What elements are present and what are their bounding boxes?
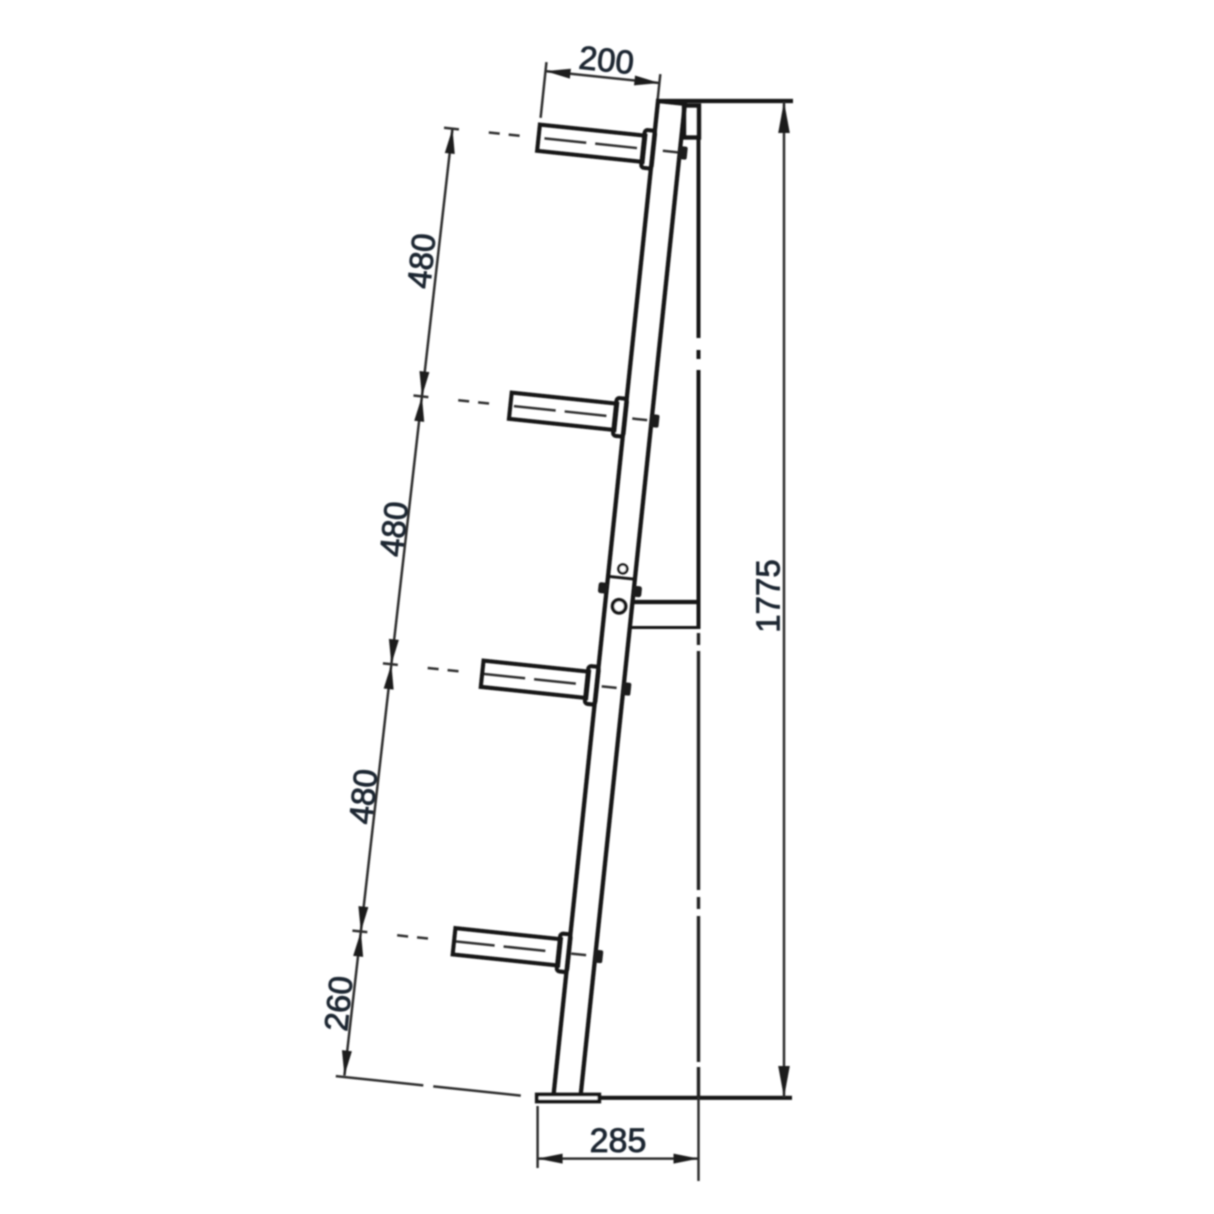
svg-text:1775: 1775 <box>750 559 787 632</box>
svg-text:200: 200 <box>577 39 636 82</box>
svg-text:285: 285 <box>590 1122 647 1160</box>
svg-text:480: 480 <box>400 232 443 291</box>
svg-text:480: 480 <box>342 767 385 826</box>
svg-text:260: 260 <box>317 974 360 1033</box>
svg-text:480: 480 <box>372 500 415 559</box>
